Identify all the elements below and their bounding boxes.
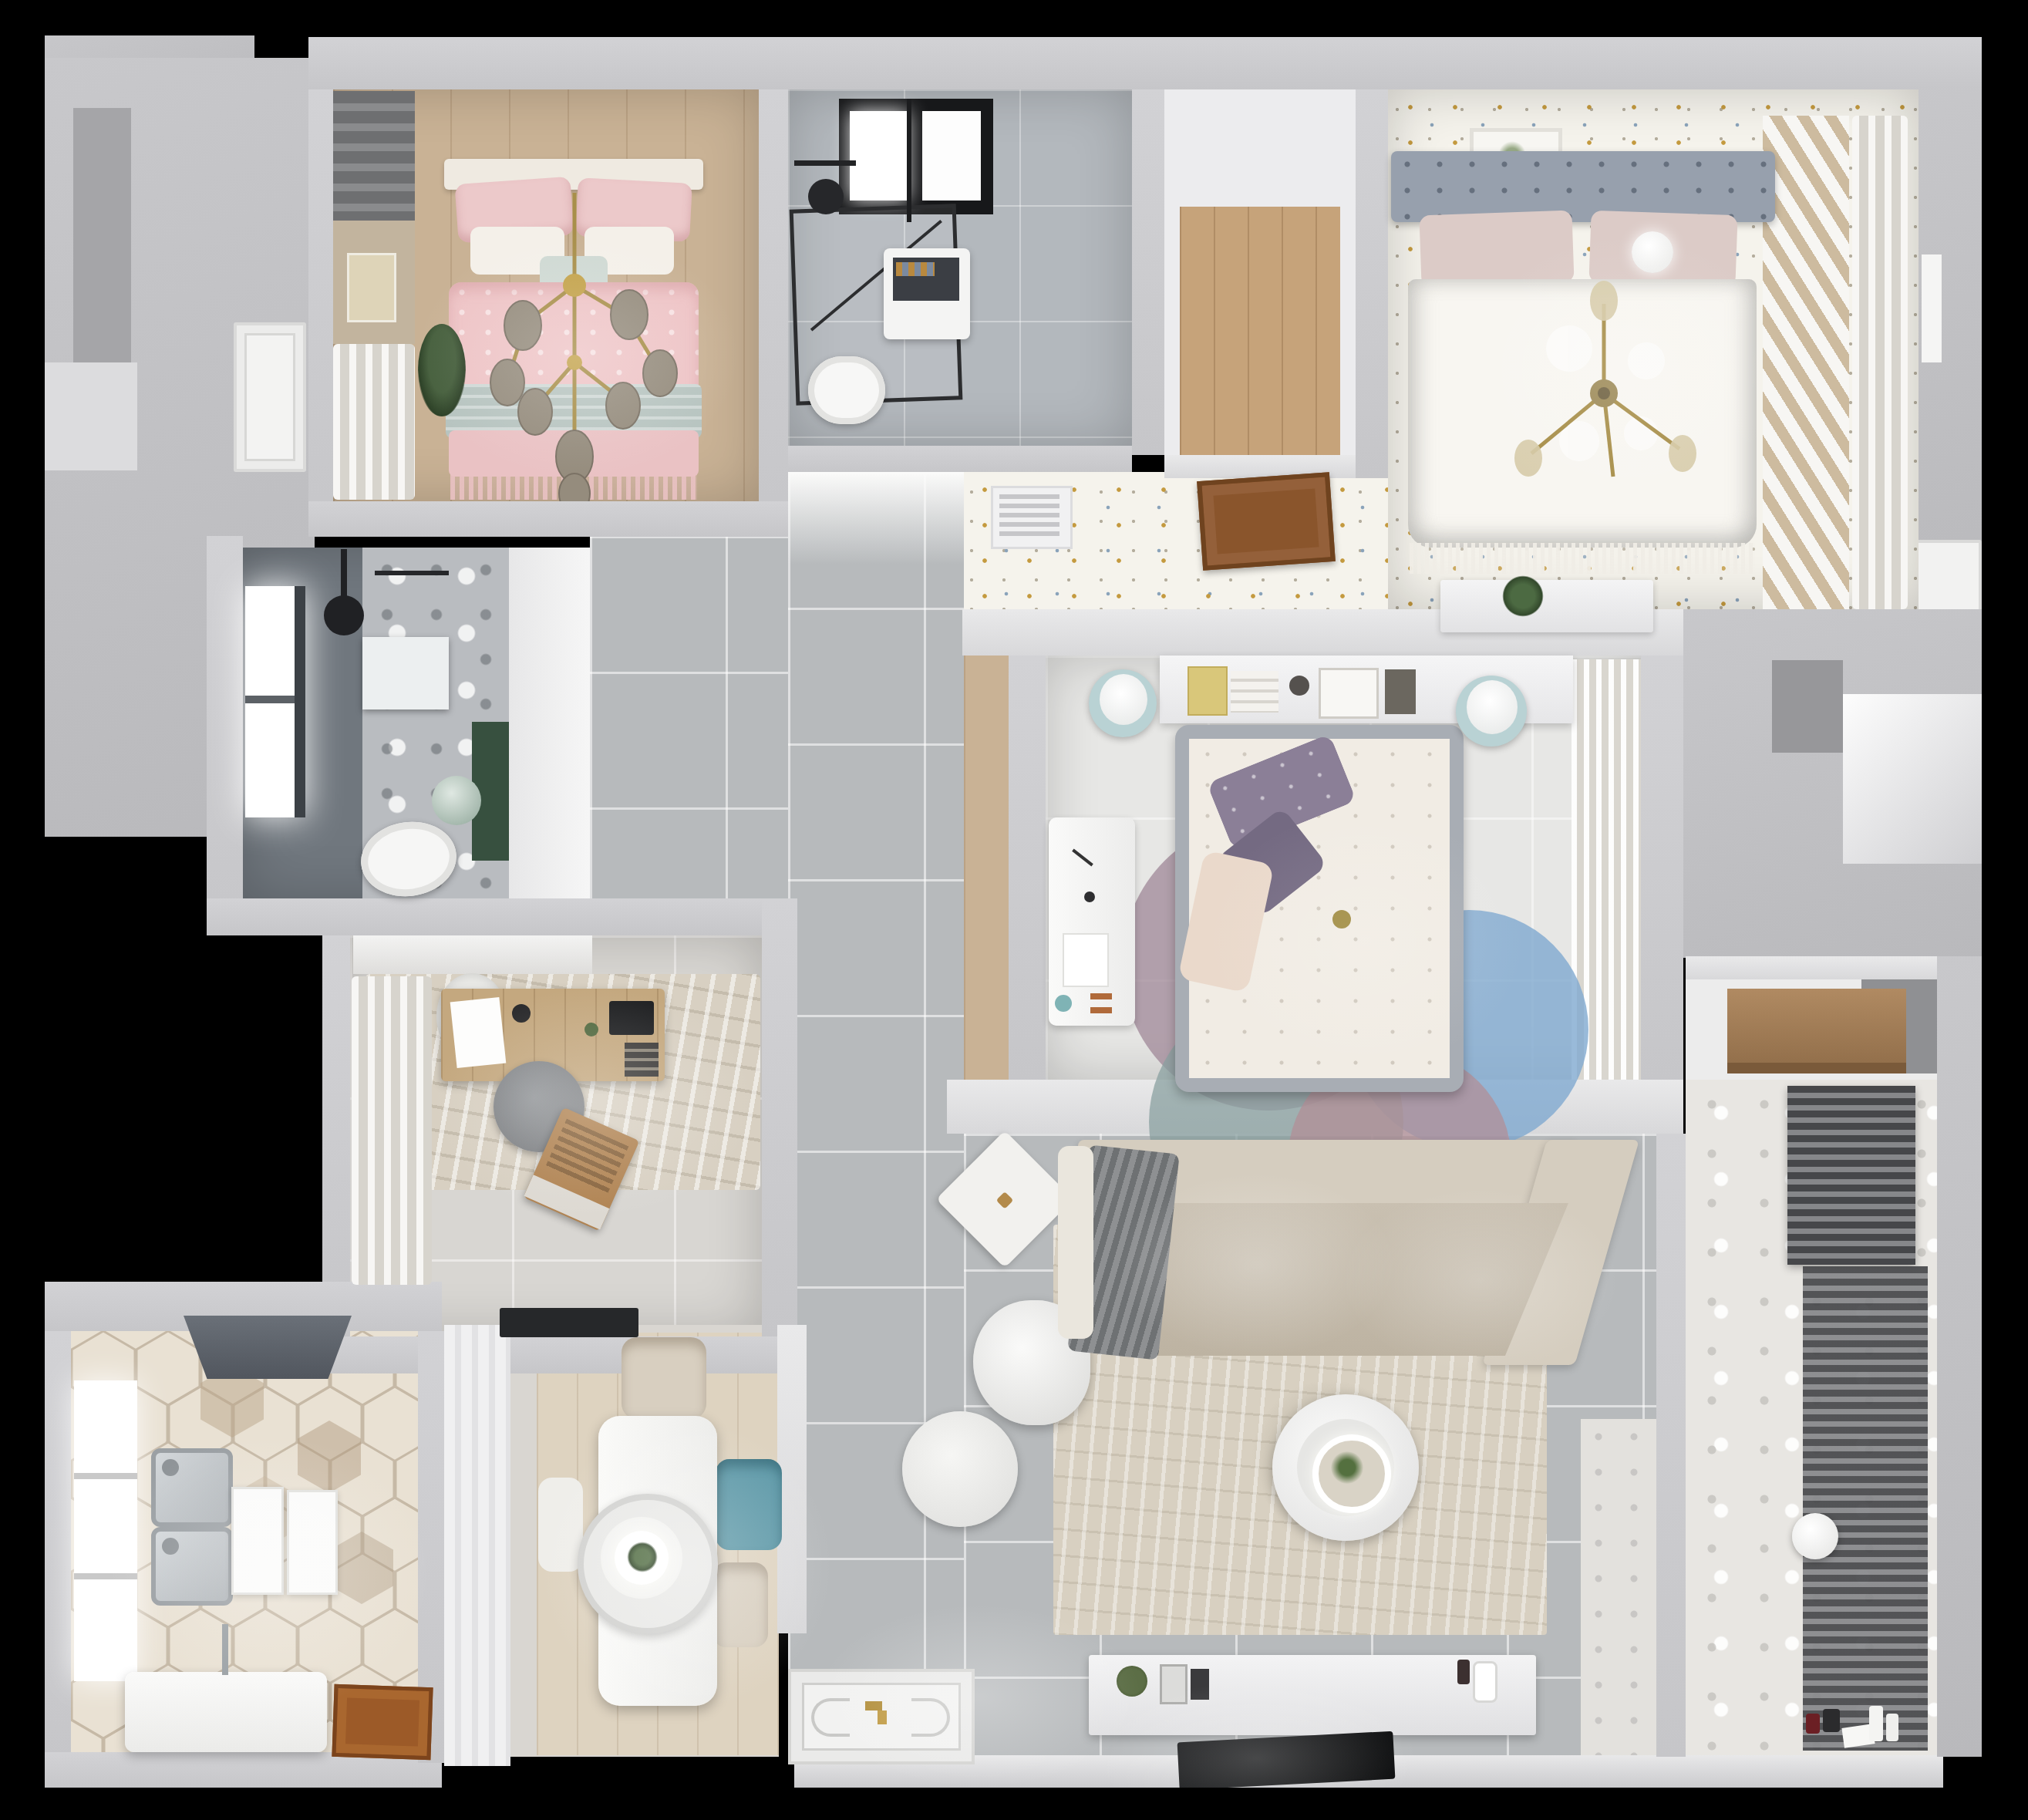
balcony-bottle xyxy=(1886,1714,1898,1741)
floor-plant xyxy=(418,324,466,416)
wall-bedroom-pink-bottom xyxy=(308,501,788,537)
copper-drawer-pull xyxy=(1090,1007,1112,1013)
white-ball xyxy=(1792,1513,1838,1559)
shelf-box-dark xyxy=(1385,669,1416,714)
wall-bathroom-shower-study-band xyxy=(207,898,796,935)
shower-pipe-2 xyxy=(341,549,347,603)
wall-balcony-nook-top xyxy=(1686,956,1937,979)
frame-bottom xyxy=(0,1788,2028,1820)
shower-bath-window xyxy=(245,586,305,817)
shower-pipe xyxy=(907,99,911,222)
roman-blind xyxy=(333,91,415,221)
kitchen-open-door-wood xyxy=(332,1684,433,1760)
wall-bathroom-shower-right xyxy=(509,548,590,898)
bath-niche-shelf xyxy=(362,637,449,709)
vent-slats xyxy=(999,494,1059,536)
pendant-plant xyxy=(627,1542,658,1572)
desk-tablet xyxy=(609,1001,654,1035)
nightstand-top xyxy=(1467,680,1518,734)
kids-desk xyxy=(1049,817,1135,1026)
shelf-book-stack xyxy=(1231,671,1278,713)
desk-camera xyxy=(512,1004,531,1023)
desk-item-dark xyxy=(1084,891,1095,902)
kitchen-island xyxy=(125,1672,327,1752)
sheer-curtain xyxy=(333,344,415,500)
right-middle-recess xyxy=(1772,660,1843,753)
floor-hall-vertical xyxy=(788,472,964,1757)
pendant-ring-lamp xyxy=(578,1494,718,1634)
wall-study-left xyxy=(322,935,350,1336)
study-curtains xyxy=(352,976,432,1285)
bed-kids xyxy=(1175,725,1464,1092)
small-wall-art xyxy=(347,253,396,322)
window-mullion xyxy=(74,1573,137,1579)
skylight-glass xyxy=(922,111,981,201)
shelf-frame xyxy=(1319,668,1379,719)
white-ottoman xyxy=(902,1411,1018,1527)
console-frame-dark xyxy=(1191,1669,1209,1700)
hall-light-ledge xyxy=(788,472,964,565)
wall-kids-left xyxy=(1009,656,1046,1080)
shelf-cup xyxy=(1289,676,1309,696)
range-hood xyxy=(184,1316,352,1379)
wall-closet-master xyxy=(1356,89,1388,478)
floorplan-stage xyxy=(0,0,2028,1820)
desk-book-stack xyxy=(625,1043,659,1077)
kids-nightstand-right xyxy=(1456,676,1527,747)
balcony-wood-shelf xyxy=(1727,989,1906,1073)
wall-bathroom-shower-left xyxy=(207,536,243,933)
half-wall-console xyxy=(1440,580,1653,632)
skylight xyxy=(839,99,993,214)
console-bottle-dark xyxy=(1457,1660,1470,1684)
study-top-cabinet xyxy=(353,935,592,974)
desk-plant-small xyxy=(584,1023,598,1036)
master-wardrobe-slats xyxy=(1763,116,1849,609)
doormat-gold-key xyxy=(878,1710,887,1724)
balcony-toy xyxy=(1806,1714,1820,1734)
console-plant xyxy=(1502,575,1544,617)
kitchen-sink xyxy=(151,1448,233,1527)
left-exterior-door xyxy=(234,322,306,472)
ceiling-light-sphere xyxy=(1632,231,1673,273)
round-mirror xyxy=(432,776,481,825)
floor-hall-upper xyxy=(590,536,788,898)
wall-living-right xyxy=(1656,1134,1686,1757)
balcony-bottle xyxy=(1869,1706,1883,1741)
study-door-mat-black xyxy=(500,1308,638,1337)
master-bed-fringe xyxy=(1410,543,1755,574)
kitchen-window xyxy=(74,1380,137,1681)
gold-chandelier-pink-room xyxy=(463,193,686,501)
counter-tray xyxy=(231,1487,284,1595)
kids-nightstand-left xyxy=(1089,669,1157,737)
drying-rack-tall xyxy=(1803,1266,1928,1751)
doormat-gold-key xyxy=(865,1701,882,1710)
kids-pillow-cream xyxy=(1177,850,1274,993)
master-pillow xyxy=(1419,211,1574,288)
sofa-arm-cushion-white xyxy=(1058,1146,1093,1339)
sofa-seat xyxy=(1117,1203,1568,1356)
skylight-glass xyxy=(850,111,908,201)
dining-chair-teal xyxy=(716,1459,782,1550)
doormat-scroll-right xyxy=(911,1698,950,1737)
side-table-item xyxy=(996,1191,1014,1209)
kids-duvet-gold-dot xyxy=(1332,910,1351,929)
wall-balcony-right-outer xyxy=(1937,956,1982,1757)
master-open-door-wood xyxy=(1197,472,1336,571)
laptop-keys xyxy=(544,1119,628,1196)
console-green-disc xyxy=(1117,1666,1147,1697)
kitchen-sink xyxy=(151,1527,233,1606)
wall-top xyxy=(308,37,1982,89)
master-headboard xyxy=(1391,151,1775,222)
dining-chair-beige-top xyxy=(622,1337,706,1419)
frame-right xyxy=(1982,0,2028,1820)
exterior-wall-left-light xyxy=(45,362,137,470)
console-vase xyxy=(1473,1661,1497,1703)
wall-kids-right xyxy=(1641,656,1683,1080)
toilet-laundry-bath xyxy=(808,356,885,424)
washing-machine xyxy=(884,248,970,339)
console-frame xyxy=(1160,1664,1187,1704)
pink-room-left-strip xyxy=(333,91,415,500)
faucet xyxy=(162,1538,179,1555)
floor-balcony-threshold xyxy=(1581,1419,1656,1757)
desk-teal-cup xyxy=(1055,995,1072,1012)
desk-pen xyxy=(1072,849,1093,867)
wall-bedroom-pink-left xyxy=(308,89,333,537)
island-faucet-chrome xyxy=(222,1624,228,1675)
coffee-table-plant xyxy=(1331,1451,1363,1484)
faucet xyxy=(162,1459,179,1476)
dining-chair-white-left xyxy=(538,1478,583,1572)
shower-head-black xyxy=(808,179,844,214)
exterior-wall-left-recess xyxy=(73,108,131,378)
wall-study-bottom xyxy=(322,1336,799,1373)
master-sheer-curtain xyxy=(1852,116,1908,609)
wall-bathroom-laundry-bottom xyxy=(788,446,1132,472)
frame-left xyxy=(0,0,45,1820)
floor-wood-sliver xyxy=(964,656,1009,1080)
pantry-cabinet-strip xyxy=(444,1325,510,1766)
wall-study-right xyxy=(762,898,797,1336)
right-middle-highlight xyxy=(1843,694,1982,864)
washer-controls xyxy=(896,262,935,276)
counter-tray xyxy=(287,1490,338,1595)
entry-doormat xyxy=(788,1669,975,1764)
ac-vent-grille xyxy=(991,486,1073,549)
wall-bedroom-pink-right xyxy=(759,89,788,537)
doormat-scroll-left xyxy=(811,1698,850,1737)
right-window-sliver xyxy=(1922,254,1942,362)
window-frame-edge xyxy=(295,586,305,817)
frame-top xyxy=(0,0,2028,35)
gold-chandelier-master xyxy=(1488,278,1720,509)
desk-white-sheet xyxy=(450,997,507,1068)
shower-fixtures-bar xyxy=(375,571,449,575)
shelf-book-yellow xyxy=(1187,666,1228,716)
desk-paper xyxy=(1063,933,1109,987)
wall-bathroom-laundry-right xyxy=(1132,89,1164,455)
window-mullion xyxy=(74,1473,137,1479)
wall-kitchen-left xyxy=(45,1331,71,1763)
nightstand-top xyxy=(1100,674,1147,725)
dining-chair-beige-bottom xyxy=(712,1562,768,1647)
balcony-toy xyxy=(1823,1709,1840,1732)
towel-bar xyxy=(794,160,856,166)
tv-console xyxy=(1089,1655,1536,1735)
floor-closet-wood xyxy=(1180,207,1340,455)
copper-drawer-pull xyxy=(1090,993,1112,999)
drying-radiator-top xyxy=(1787,1086,1915,1265)
